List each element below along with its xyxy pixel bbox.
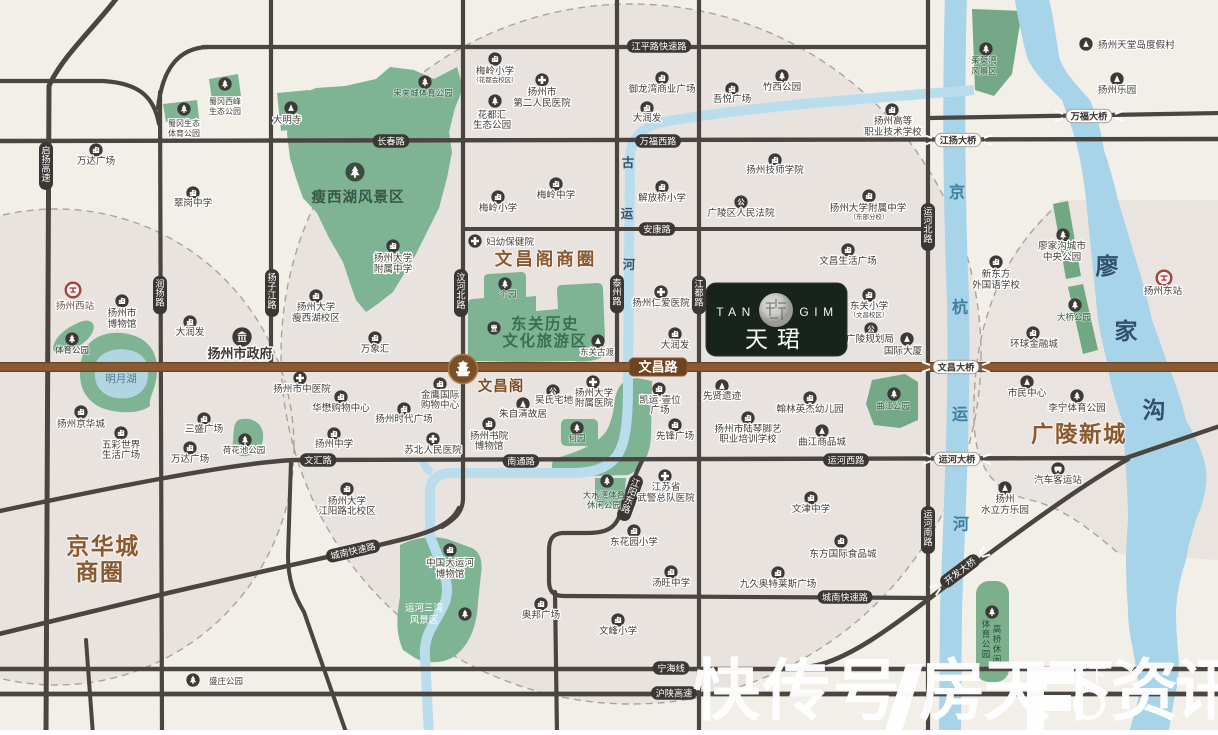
svg-text:东关小学: 东关小学 [850, 300, 889, 312]
svg-text:朱自清故居: 朱自清故居 [499, 408, 547, 420]
svg-text:江扬大桥: 江扬大桥 [940, 134, 978, 145]
svg-text:东花园小学: 东花园小学 [610, 536, 658, 548]
svg-text:水立方乐园: 水立方乐园 [981, 504, 1029, 516]
svg-text:古: 古 [622, 155, 635, 170]
svg-text:博物馆: 博物馆 [475, 440, 504, 452]
svg-text:扬州西站: 扬州西站 [56, 300, 95, 312]
svg-text:文化旅游区: 文化旅游区 [502, 331, 587, 350]
svg-text:扬州高等: 扬州高等 [874, 115, 913, 127]
svg-text:江苏省: 江苏省 [652, 481, 681, 493]
svg-text:（文昌校区）: （文昌校区） [850, 310, 889, 319]
svg-text:文昌阁: 文昌阁 [478, 377, 525, 395]
svg-text:体育公园: 体育公园 [168, 128, 200, 138]
svg-text:御龙湾商业广场: 御龙湾商业广场 [628, 83, 696, 95]
svg-text:文津中学: 文津中学 [792, 503, 831, 515]
svg-text:华懋购物中心: 华懋购物中心 [312, 402, 370, 414]
svg-text:运河大桥: 运河大桥 [939, 453, 977, 464]
svg-text:宁海线: 宁海线 [657, 662, 685, 673]
svg-text:东关历史: 东关历史 [511, 314, 579, 333]
svg-text:体: 体 [982, 619, 991, 629]
svg-text:扬州市中医院: 扬州市中医院 [273, 383, 331, 395]
svg-text:生态公园: 生态公园 [473, 119, 511, 131]
svg-text:梅岭小学: 梅岭小学 [476, 65, 515, 77]
svg-text:路: 路 [923, 536, 932, 547]
svg-text:吾悦广场: 吾悦广场 [713, 93, 752, 105]
svg-text:运河西路: 运河西路 [828, 454, 865, 465]
svg-text:大润发: 大润发 [633, 112, 662, 124]
svg-text:广场: 广场 [650, 404, 670, 416]
svg-text:桥: 桥 [993, 634, 1002, 644]
svg-text:文昌大桥: 文昌大桥 [938, 361, 976, 372]
svg-text:天珺: 天珺 [745, 326, 809, 352]
svg-text:扬州技师学院: 扬州技师学院 [746, 164, 804, 176]
svg-text:城南快速路: 城南快速路 [822, 591, 868, 602]
svg-text:文昌生活广场: 文昌生活广场 [819, 255, 877, 267]
svg-text:翠岗中学: 翠岗中学 [174, 197, 213, 209]
svg-text:汤旺中学: 汤旺中学 [652, 577, 691, 589]
svg-text:风景区: 风景区 [971, 66, 997, 76]
svg-text:京华城: 京华城 [66, 533, 140, 559]
svg-text:路: 路 [923, 233, 932, 244]
svg-text:第二人民医院: 第二人民医院 [513, 97, 571, 109]
svg-text:明月湖: 明月湖 [105, 373, 137, 385]
svg-text:梅岭中学: 梅岭中学 [537, 189, 576, 201]
svg-text:（东部分校）: （东部分校） [850, 212, 889, 221]
svg-text:长春路: 长春路 [377, 135, 405, 146]
svg-text:苏北人民医院: 苏北人民医院 [404, 444, 462, 456]
svg-text:曲江公园: 曲江公园 [876, 401, 910, 411]
svg-text:扬州市: 扬州市 [528, 86, 557, 98]
svg-text:扬州: 扬州 [995, 493, 1014, 505]
svg-text:路: 路 [456, 299, 465, 310]
svg-text:翰林英杰幼儿园: 翰林英杰幼儿园 [776, 403, 843, 415]
svg-text:大润发: 大润发 [661, 339, 690, 351]
svg-text:育: 育 [982, 629, 991, 639]
svg-text:大明寺: 大明寺 [273, 114, 302, 126]
svg-text:杭: 杭 [952, 298, 968, 317]
svg-text:扬州中学: 扬州中学 [315, 438, 354, 450]
svg-text:扬州时代广场: 扬州时代广场 [375, 413, 433, 425]
svg-text:路: 路 [267, 299, 276, 310]
svg-text:扬州市政府: 扬州市政府 [207, 346, 272, 361]
svg-text:梅岭小学: 梅岭小学 [479, 202, 518, 214]
svg-text:广陵规划局: 广陵规划局 [846, 333, 894, 345]
svg-text:博物馆: 博物馆 [108, 318, 137, 330]
svg-text:路: 路 [612, 295, 621, 306]
svg-text:扬州仁爱医院: 扬州仁爱医院 [632, 297, 690, 309]
svg-text:大桥公园: 大桥公园 [1057, 312, 1091, 322]
svg-text:大润发: 大润发 [176, 326, 205, 338]
svg-text:扬州东站: 扬州东站 [1144, 285, 1183, 297]
svg-text:休闲公园: 休闲公园 [587, 500, 621, 510]
svg-text:九久奥特莱斯广场: 九久奥特莱斯广场 [740, 578, 817, 590]
svg-text:万象汇: 万象汇 [361, 343, 390, 355]
svg-text:新东方: 新东方 [982, 268, 1011, 280]
svg-text:广陵新城: 广陵新城 [1031, 421, 1127, 447]
svg-text:先锋广场: 先锋广场 [656, 430, 695, 442]
svg-text:博物馆: 博物馆 [436, 568, 465, 580]
svg-text:南通路: 南通路 [507, 455, 535, 466]
svg-text:路: 路 [155, 296, 164, 307]
svg-text:沟: 沟 [1143, 397, 1166, 423]
svg-text:扬州京华城: 扬州京华城 [57, 418, 105, 430]
svg-text:荷花池公园: 荷花池公园 [223, 445, 266, 455]
svg-text:盛庄公园: 盛庄公园 [209, 676, 243, 686]
svg-text:生态公园: 生态公园 [209, 106, 241, 116]
svg-text:安康路: 安康路 [643, 223, 671, 234]
svg-text:GIM: GIM [799, 305, 838, 319]
svg-text:运: 运 [952, 406, 968, 424]
svg-text:附属中学: 附属中学 [374, 263, 413, 275]
svg-text:环球金融城: 环球金融城 [1010, 338, 1058, 350]
svg-text:万福西路: 万福西路 [640, 135, 677, 146]
svg-text:武警总队医院: 武警总队医院 [637, 492, 695, 504]
svg-text:大水湾体育: 大水湾体育 [583, 490, 626, 500]
svg-text:东方国际食品城: 东方国际食品城 [809, 548, 877, 560]
svg-text:扬州大学附属中学: 扬州大学附属中学 [830, 202, 907, 214]
svg-text:解放桥小学: 解放桥小学 [638, 192, 686, 204]
svg-text:快传号: 快传号 [693, 654, 903, 729]
svg-text:廖家沟城市: 廖家沟城市 [1038, 240, 1086, 252]
svg-text:外国语学校: 外国语学校 [972, 279, 1020, 291]
svg-text:沪陕高速: 沪陕高速 [656, 687, 693, 698]
svg-text:妇幼保健院: 妇幼保健院 [486, 236, 534, 248]
svg-text:宋夹城体育公园: 宋夹城体育公园 [393, 88, 453, 98]
svg-text:广陵区人民法院: 广陵区人民法院 [707, 207, 775, 219]
svg-text:生活广场: 生活广场 [102, 449, 141, 461]
svg-text:职业培训学校: 职业培训学校 [719, 433, 777, 445]
svg-text:文昌阁商圈: 文昌阁商圈 [495, 249, 598, 269]
svg-text:扬州大学: 扬州大学 [374, 252, 413, 264]
svg-text:万达广场: 万达广场 [77, 155, 116, 167]
svg-text:奥邦广场: 奥邦广场 [522, 609, 561, 621]
svg-text:河: 河 [953, 515, 969, 534]
svg-text:河: 河 [623, 257, 636, 272]
svg-text:休: 休 [993, 644, 1002, 654]
svg-text:文汇路: 文汇路 [304, 454, 332, 465]
svg-text:万达广场: 万达广场 [171, 453, 210, 465]
svg-text:速: 速 [41, 173, 50, 183]
svg-text:扬州乐园: 扬州乐园 [1098, 84, 1136, 96]
svg-text:京: 京 [949, 183, 965, 202]
svg-text:附属医院: 附属医院 [575, 397, 614, 409]
svg-text:体育公园: 体育公园 [55, 345, 89, 355]
svg-text:文昌路: 文昌路 [638, 360, 678, 375]
svg-text:吴氏宅地: 吴氏宅地 [535, 394, 574, 406]
svg-text:蜀冈生态: 蜀冈生态 [168, 118, 200, 128]
svg-text:职业技术学校: 职业技术学校 [864, 126, 922, 138]
svg-text:（花都会校区）: （花都会校区） [472, 75, 518, 84]
svg-text:风景区: 风景区 [410, 615, 439, 626]
svg-text:中央公园: 中央公园 [1043, 251, 1081, 263]
svg-text:扬州大学: 扬州大学 [297, 301, 336, 313]
svg-text:曲江商品城: 曲江商品城 [798, 436, 846, 448]
svg-text:TAN: TAN [716, 305, 756, 319]
svg-text:蜀冈西峰: 蜀冈西峰 [209, 96, 241, 106]
svg-text:江平路快速路: 江平路快速路 [631, 40, 686, 51]
svg-text:商圈: 商圈 [76, 559, 125, 585]
svg-text:扬州天堂岛度假村: 扬州天堂岛度假村 [1098, 39, 1175, 51]
svg-text:何园: 何园 [568, 433, 585, 443]
svg-text:购物中心: 购物中心 [421, 399, 460, 411]
svg-text:高: 高 [993, 624, 1002, 634]
svg-text:江阳路北校区: 江阳路北校区 [318, 505, 376, 517]
svg-text:市民中心: 市民中心 [1008, 387, 1047, 399]
svg-text:三盛广场: 三盛广场 [185, 423, 224, 435]
svg-text:文峰小学: 文峰小学 [599, 625, 638, 637]
svg-text:竹西公园: 竹西公园 [763, 81, 801, 93]
svg-text:公: 公 [982, 639, 991, 649]
svg-text:汽车客运站: 汽车客运站 [1034, 474, 1082, 486]
svg-text:运: 运 [621, 207, 634, 221]
svg-text:瘦西湖风景区: 瘦西湖风景区 [312, 188, 405, 206]
svg-text:个园: 个园 [499, 289, 516, 299]
svg-text:国际大厦: 国际大厦 [884, 345, 923, 357]
svg-text:万福大桥: 万福大桥 [1070, 110, 1109, 121]
svg-text:扬州市: 扬州市 [108, 307, 137, 319]
svg-text:先贤遗迹: 先贤遗迹 [703, 390, 742, 402]
svg-text:廖: 廖 [1096, 253, 1119, 279]
svg-text:瘦西湖校区: 瘦西湖校区 [292, 312, 340, 324]
svg-text:中国大运河: 中国大运河 [426, 557, 474, 569]
svg-text:路: 路 [694, 296, 703, 307]
svg-text:房天下: 房天下 [1051, 665, 1107, 686]
svg-text:家: 家 [1115, 318, 1138, 344]
svg-text:运河三湾: 运河三湾 [405, 602, 444, 614]
svg-text:茱萸湾: 茱萸湾 [971, 55, 997, 65]
svg-text:李宁体育公园: 李宁体育公园 [1048, 402, 1106, 414]
